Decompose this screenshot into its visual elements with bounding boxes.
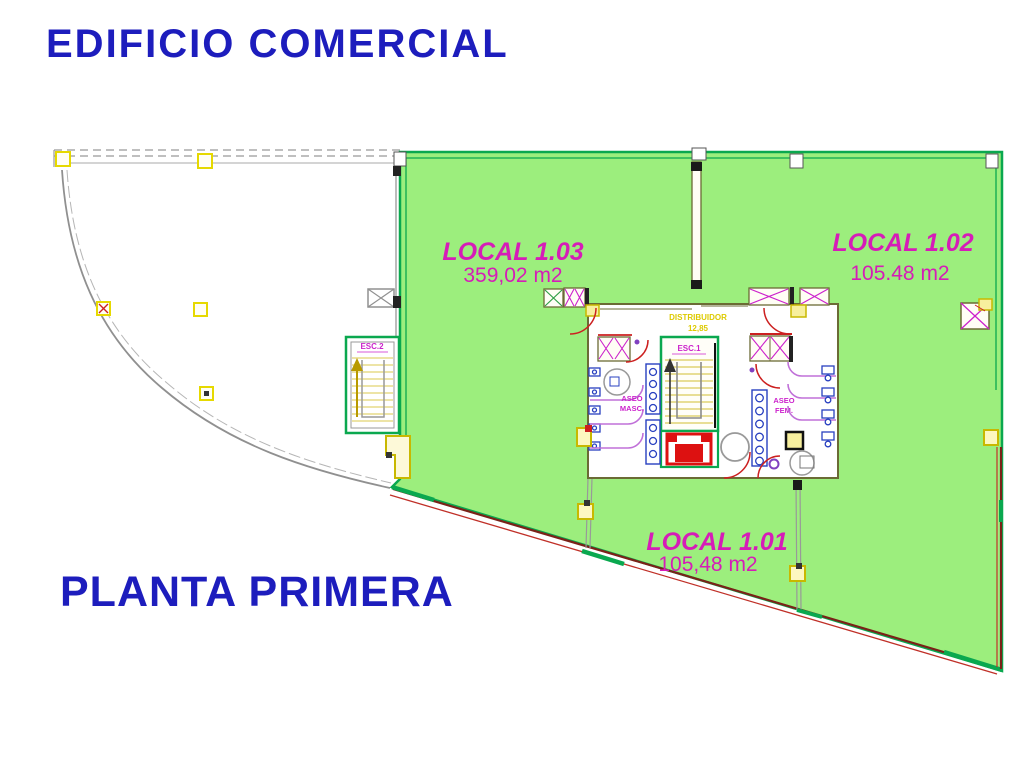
- men-restroom-label-2: MASC.: [620, 404, 644, 413]
- local-103-name: LOCAL 1.03: [442, 238, 583, 266]
- vent-box-gray: [368, 289, 394, 307]
- floor-plan-drawing: DISTRIBUIDOR 12,85 ESC.1: [0, 0, 1024, 773]
- local-101-name: LOCAL 1.01: [646, 528, 787, 556]
- men-restroom-label-1: ASEO: [621, 394, 642, 403]
- stair1-label: ESC.1: [677, 344, 701, 353]
- round-column: [721, 433, 749, 461]
- stair2-label: ESC.2: [360, 342, 384, 351]
- local-102-name: LOCAL 1.02: [832, 229, 973, 257]
- toilets: [646, 364, 660, 464]
- unbuilt-area: [54, 150, 400, 488]
- shaft-marker: [786, 432, 803, 449]
- site-boundary-curve: [62, 170, 390, 488]
- column-marker: [578, 504, 593, 519]
- marker-tick: [204, 391, 209, 396]
- service-core: DISTRIBUIDOR 12,85 ESC.1: [544, 287, 838, 478]
- column-marker: [984, 430, 998, 445]
- local-101-area: 105,48 m2: [658, 553, 757, 576]
- person-icon: [750, 368, 755, 373]
- sinks: [752, 390, 767, 466]
- elevator: [661, 431, 718, 467]
- corridor-label: DISTRIBUIDOR: [669, 313, 727, 322]
- stairwell-esc1: ESC.1: [661, 337, 718, 431]
- person-icon: [635, 340, 640, 345]
- shaft-box-right: [961, 299, 992, 329]
- floor-plan-sheet: EDIFICIO COMERCIAL PLANTA PRIMERA: [0, 0, 1024, 773]
- women-restroom-label-1: ASEO: [773, 396, 794, 405]
- local-103-area: 359,02 m2: [463, 264, 562, 287]
- local-102-area: 105.48 m2: [850, 262, 949, 285]
- survey-column-markers: [56, 152, 213, 400]
- column-marker: [791, 305, 806, 317]
- column-marker: [586, 305, 599, 316]
- corridor-area: 12,85: [688, 324, 709, 333]
